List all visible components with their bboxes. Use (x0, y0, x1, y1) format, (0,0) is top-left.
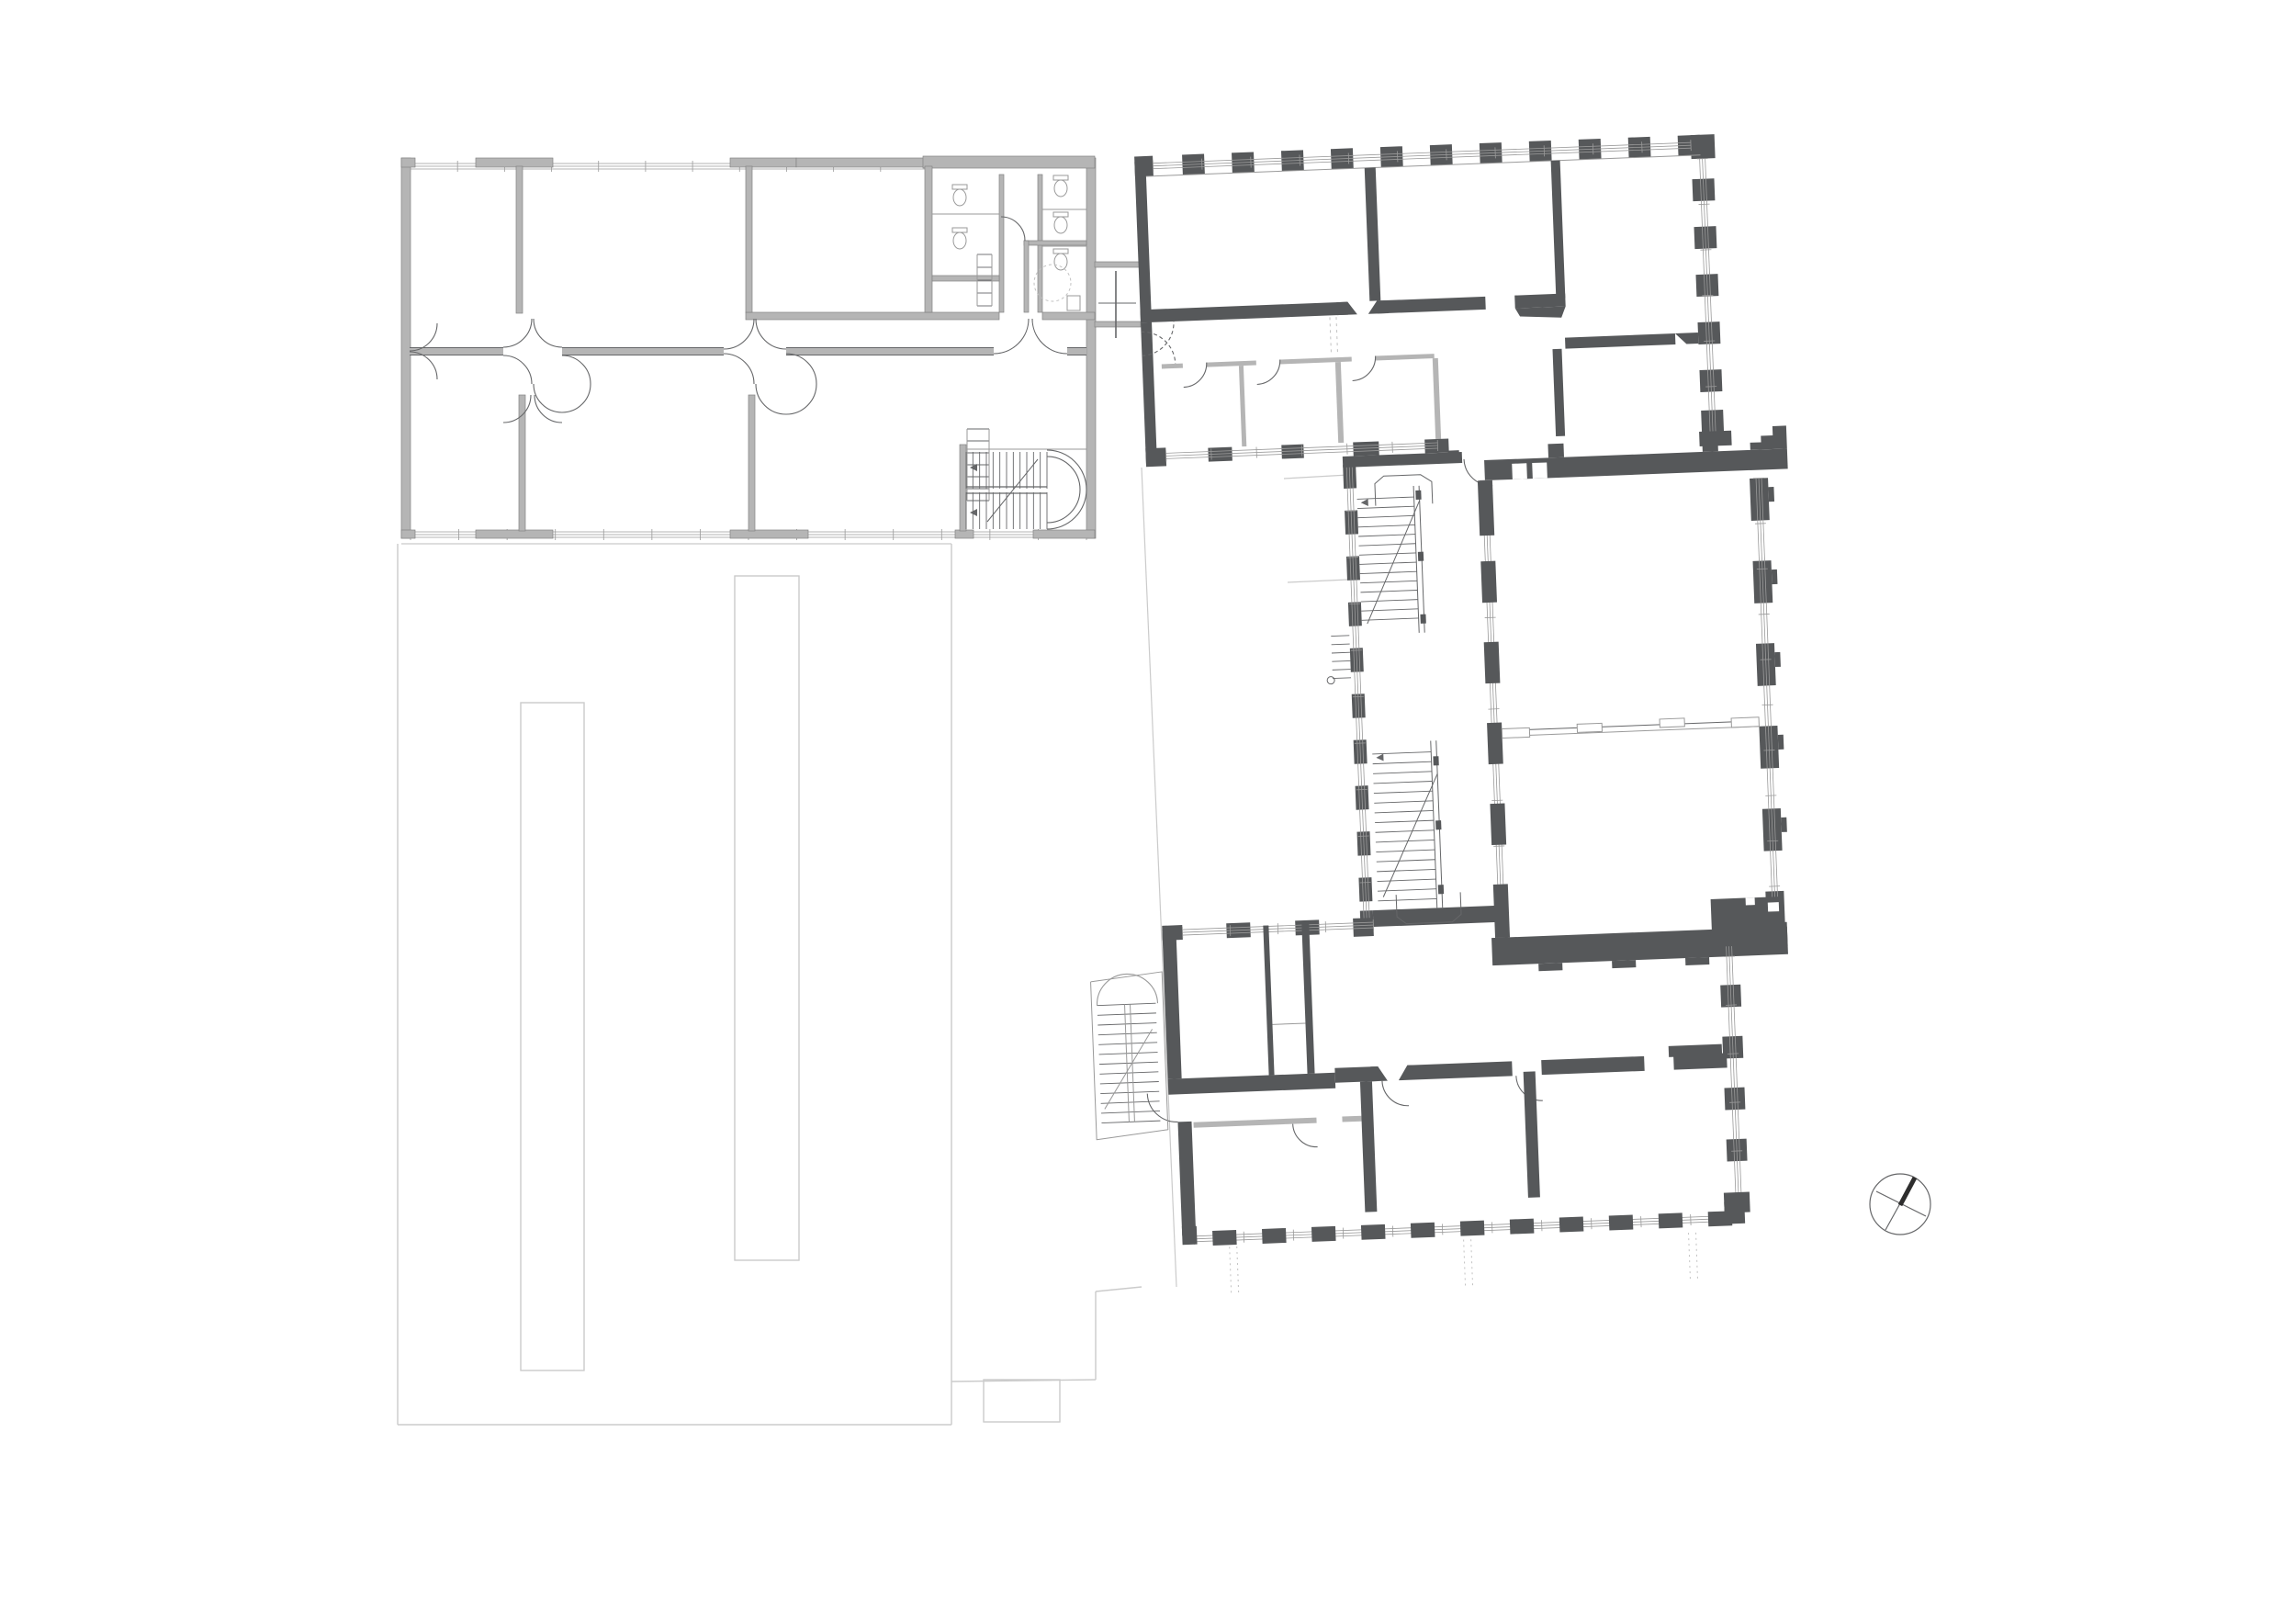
hall-wall (1484, 448, 1788, 480)
wall (476, 530, 553, 538)
partition-wall (999, 175, 1004, 312)
exterior-stair-treads (1101, 1111, 1160, 1112)
corner-block (1724, 1192, 1750, 1213)
wall (1373, 906, 1498, 927)
stair-arrow (970, 509, 977, 516)
facade-pier (1609, 1214, 1634, 1230)
facade-pier (1478, 480, 1494, 536)
divider-box (1660, 718, 1684, 727)
door-arc (1032, 319, 1067, 354)
exterior-stair-treads (1097, 1003, 1156, 1005)
wall (1515, 307, 1566, 320)
facade-pier (1262, 1228, 1287, 1244)
partition-wall (516, 166, 523, 313)
facade-pier (1538, 963, 1562, 971)
facade-pier (1487, 723, 1503, 765)
facade-pier (1480, 561, 1497, 603)
facade-pier (1134, 156, 1154, 177)
witness-line (1230, 1246, 1232, 1294)
door-arc (503, 319, 532, 347)
door-arc (410, 323, 437, 351)
site-box (984, 1380, 1060, 1422)
door-arc (410, 352, 437, 379)
pier-cap (1772, 570, 1778, 584)
wall (1565, 333, 1675, 349)
toilet-fixture (953, 189, 966, 206)
stair-treads (1376, 850, 1435, 851)
exterior-stair (1332, 660, 1350, 661)
wall (746, 312, 999, 320)
facade-pier (1145, 447, 1166, 467)
door-arc (1352, 356, 1377, 381)
partition-wall (1280, 357, 1352, 365)
partition-wall (1301, 924, 1314, 1074)
pier-cap (1768, 487, 1774, 502)
facade-pier (1685, 957, 1709, 965)
stair-treads (1378, 898, 1436, 900)
partition-wall (746, 166, 752, 312)
witness-line (1237, 1246, 1239, 1294)
divider-box (1731, 717, 1759, 727)
door-jamb (1675, 333, 1698, 344)
hall-entrance (1532, 462, 1548, 479)
north-arrow-layer (1870, 1174, 1930, 1235)
stair-treads (1357, 497, 1414, 499)
stair-treads (1362, 618, 1419, 620)
exterior-stair-treads (1099, 1053, 1158, 1054)
partition-wall (1551, 161, 1566, 299)
stair-treads (1359, 553, 1416, 555)
wall (1407, 1061, 1513, 1079)
hall-entrance (1512, 463, 1527, 479)
pier-cap (1778, 735, 1784, 750)
wall (476, 158, 553, 167)
partition-wall (1524, 1071, 1540, 1197)
witness-line (1689, 1233, 1691, 1280)
newel-post (1433, 756, 1438, 765)
stair-treads (1358, 535, 1415, 536)
door-arc (724, 319, 754, 349)
hall-divider (1502, 721, 1759, 731)
witness-line (1464, 1240, 1466, 1288)
partition-wall (1024, 241, 1086, 245)
corner-block (1750, 425, 1787, 450)
exterior-stair (1331, 636, 1349, 637)
stair-rail (1047, 457, 1080, 523)
stair-treads (1358, 524, 1415, 526)
wall (401, 530, 415, 538)
exterior-stair-treads (1101, 1121, 1160, 1122)
facade-pier (1361, 1224, 1386, 1240)
stair-treads (1375, 810, 1434, 812)
exterior-stair (1332, 652, 1350, 653)
wall (1541, 1056, 1645, 1075)
skylight-strip (735, 576, 799, 1260)
partition-wall (1239, 366, 1246, 446)
facade-pier (1612, 960, 1636, 968)
stair-treads (1360, 581, 1417, 582)
exterior-stair (1332, 644, 1350, 645)
stair-treads (1374, 801, 1433, 803)
stair-treads (1374, 791, 1433, 793)
door-arc (1001, 217, 1025, 241)
west-building-layer (401, 156, 1141, 540)
door-jamb (1336, 301, 1357, 315)
partition-wall (748, 395, 755, 531)
facade-pier (1353, 918, 1374, 937)
hall-divider (1503, 727, 1760, 737)
stair-arrow (1376, 754, 1383, 761)
stair-treads (1360, 590, 1417, 592)
exterior-stair-treads (1099, 1072, 1158, 1074)
corner-block (1182, 1226, 1198, 1246)
partition-wall (1365, 167, 1381, 300)
site-boundary (1142, 468, 1176, 1287)
partition-wall (925, 166, 932, 312)
junction-notch (1768, 902, 1779, 911)
stair-treads (1361, 600, 1418, 602)
stair-break-line (987, 459, 1038, 522)
door-jamb (1367, 300, 1389, 314)
site-step (1284, 475, 1348, 479)
divider-box (1502, 727, 1529, 738)
wall (1141, 302, 1348, 323)
witness-line (1696, 1233, 1698, 1280)
toilet-fixture (1053, 249, 1068, 254)
wall (1086, 158, 1096, 538)
door-arc (1183, 363, 1208, 388)
wall (401, 158, 415, 167)
stair-arrow (1361, 499, 1368, 506)
toilet-fixture (952, 228, 967, 232)
stair-treads (1361, 609, 1418, 611)
fixture (1067, 296, 1080, 310)
door-jamb (1370, 1066, 1388, 1082)
facade-pier (1311, 1226, 1336, 1242)
door-arc (503, 355, 532, 384)
pier-cap (1774, 652, 1781, 667)
newel-post (1438, 885, 1444, 894)
link-wall (1095, 321, 1141, 327)
wall (923, 156, 1095, 168)
stair-treads (1373, 781, 1432, 783)
wall (796, 158, 928, 167)
wall (1042, 312, 1095, 320)
partition-wall (1376, 354, 1435, 360)
facade-pier (1484, 642, 1501, 684)
rail-post (1327, 676, 1334, 683)
skylight-strip (521, 703, 584, 1370)
stair-treads (1375, 820, 1434, 822)
door-arc (1147, 1092, 1177, 1122)
facade-pier (1490, 803, 1506, 845)
stair-treads (1359, 562, 1416, 564)
corridor-wall (1067, 347, 1086, 355)
partition-wall (1207, 361, 1256, 367)
exterior-stair-treads (1100, 1081, 1159, 1083)
stair-treads (1376, 830, 1435, 832)
corridor-wall (562, 347, 724, 355)
wall (1177, 1122, 1196, 1235)
wall (1141, 322, 1157, 464)
wall-stub (1548, 444, 1564, 458)
stair-treads (1372, 752, 1431, 754)
stair-treads (1376, 840, 1435, 841)
stair-treads (1378, 879, 1436, 881)
facade-pier (1559, 1217, 1584, 1233)
stair-treads (1359, 544, 1416, 546)
wall-stub (1669, 1044, 1722, 1057)
door-arc (994, 319, 1029, 354)
door-arc (534, 355, 591, 412)
exterior-stair-treads (1098, 1032, 1157, 1034)
facade-pier (1659, 1212, 1683, 1228)
newel-post (1415, 491, 1421, 500)
toilet-fixture (1053, 175, 1068, 180)
wall (1168, 1073, 1336, 1095)
newel-post (1418, 552, 1424, 561)
door-arc (1382, 1080, 1409, 1107)
partition-wall (1342, 1116, 1361, 1122)
wall-stub (1702, 435, 1718, 452)
partition-wall (1024, 241, 1029, 312)
door-arc (503, 395, 531, 423)
exterior-stair-treads (1100, 1091, 1159, 1093)
facade-pier (1212, 1230, 1237, 1246)
exterior-stair-treads (1097, 1023, 1156, 1025)
stair-rail (1375, 474, 1433, 505)
site-step (1288, 580, 1348, 582)
partition-wall (1194, 1118, 1317, 1128)
wall (1033, 530, 1095, 538)
exterior-stair (1333, 670, 1351, 671)
partition-wall (1335, 362, 1344, 443)
wall (960, 445, 966, 531)
stair-treads (1373, 761, 1432, 763)
site-line (1096, 1287, 1142, 1291)
site-layer (398, 468, 1348, 1425)
partition-wall (1263, 925, 1274, 1075)
newel-post (1420, 615, 1425, 624)
toilet-fixture (1054, 217, 1067, 233)
stair-treads (1377, 869, 1435, 871)
partition-wall (1162, 364, 1183, 369)
wall (730, 530, 808, 538)
facade-pier (1493, 884, 1510, 938)
junction-notch (1746, 897, 1755, 905)
stair-treads (1357, 506, 1414, 508)
toilet-fixture (952, 185, 967, 189)
corridor-wall (410, 347, 503, 355)
north-arrow-needle (1900, 1178, 1915, 1205)
door-arc (724, 354, 754, 384)
wall (1552, 349, 1565, 436)
exterior-stair-treads (1099, 1062, 1158, 1064)
stair-rail (1096, 973, 1157, 1006)
toilet-fixture (953, 232, 966, 249)
facade-pier (1411, 1223, 1435, 1238)
main-building-layer (1059, 132, 1818, 1303)
wall (1377, 297, 1485, 314)
exterior-stair-treads (1097, 1013, 1156, 1015)
corridor-wall (786, 347, 994, 355)
exterior-stair (1333, 678, 1351, 679)
door-arc (756, 354, 816, 414)
pier-cap (1781, 818, 1787, 832)
toilet-fixture (1053, 212, 1068, 217)
link-wall (1095, 262, 1141, 267)
door-arc (1293, 1123, 1318, 1148)
facade-pier (1162, 925, 1183, 941)
door-arc (756, 319, 786, 349)
ceiling-line (1336, 317, 1338, 355)
door-arc (1256, 360, 1281, 385)
divider-box (1577, 723, 1602, 732)
toilet-fixture (1054, 180, 1067, 197)
stair-treads (1377, 860, 1435, 862)
newel-post (1435, 820, 1441, 829)
facade-pier (1510, 1219, 1535, 1235)
facade-pier (1460, 1221, 1485, 1236)
exterior-stair-treads (1098, 1043, 1157, 1044)
floor-plan-page (0, 0, 2296, 1624)
door-arc (534, 319, 562, 347)
partition-wall (1360, 1081, 1377, 1212)
stair-treads (1357, 515, 1414, 517)
wall (730, 158, 796, 167)
ceiling-line (1330, 317, 1332, 355)
wall (1134, 162, 1152, 322)
witness-line (1471, 1239, 1473, 1287)
wall (401, 158, 411, 538)
floor-plan-canvas (0, 0, 2296, 1624)
closet-partition (1272, 1023, 1305, 1024)
wall (1514, 294, 1565, 309)
partition-wall (1433, 358, 1442, 448)
stair-treads (1373, 772, 1432, 773)
toilet-fixture (1054, 254, 1067, 270)
